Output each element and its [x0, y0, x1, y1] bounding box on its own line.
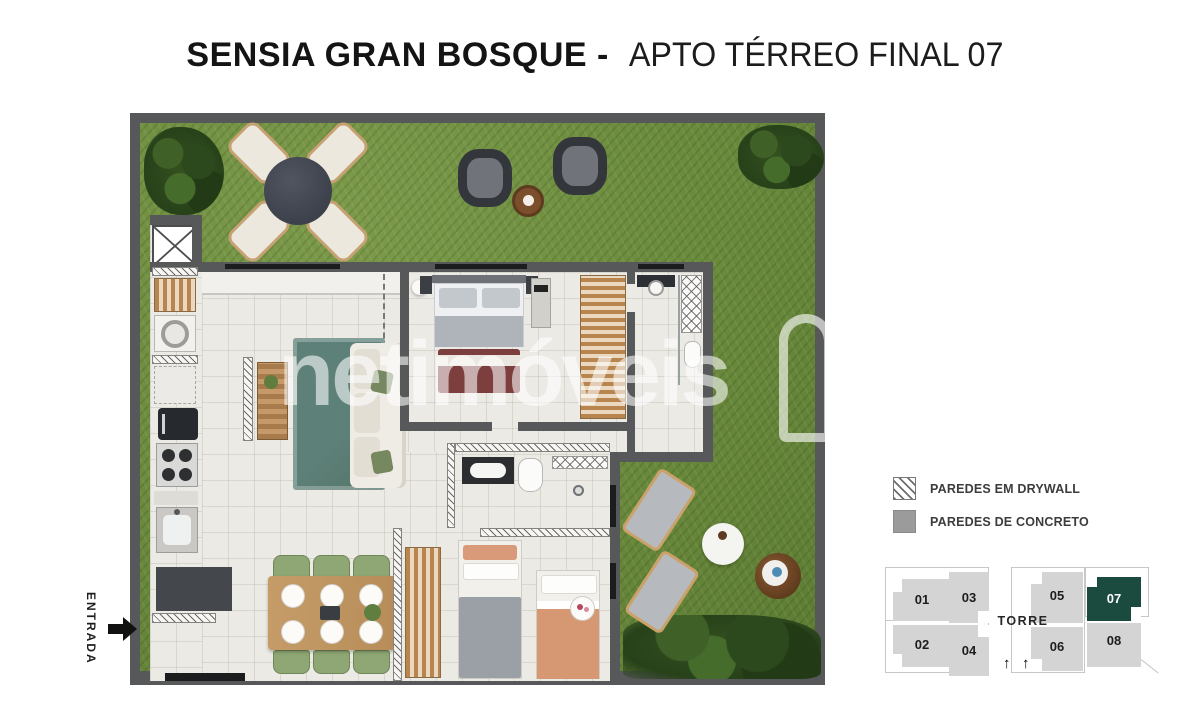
floorplan-page: SENSIA GRAN BOSQUE - APTO TÉRREO FINAL 0… — [0, 0, 1200, 720]
project-name: SENSIA GRAN BOSQUE - — [186, 36, 608, 74]
unit-06: 06 — [1031, 627, 1083, 671]
unit-notch — [1031, 572, 1042, 584]
garden-table — [264, 157, 332, 225]
flower — [577, 604, 583, 610]
shower-head — [573, 485, 584, 496]
burner — [179, 468, 192, 481]
sofa-pillow-green — [370, 369, 394, 395]
unit-04: 04 — [949, 625, 989, 676]
sofa-cushion — [354, 393, 380, 433]
unit-07-highlighted: 07 — [1087, 577, 1141, 621]
drywall-wall-bed2 — [480, 528, 610, 537]
plate — [281, 584, 305, 608]
sofa — [350, 343, 406, 488]
sideboard — [257, 362, 288, 440]
bed-headboard — [432, 275, 526, 283]
faucet — [174, 509, 180, 515]
nightstand — [420, 276, 432, 294]
apartment-name: APTO TÉRREO FINAL 07 — [629, 36, 1004, 75]
sink-basin — [163, 515, 191, 545]
blanket-salmon — [537, 609, 599, 679]
unit-03-label: 03 — [949, 590, 989, 605]
bush-top-right — [738, 125, 824, 189]
unit-notch — [1031, 659, 1042, 671]
page-title: SENSIA GRAN BOSQUE - APTO TÉRREO FINAL 0… — [0, 36, 1200, 75]
watermark-logo-tail — [835, 278, 876, 331]
watermark-logo-arch — [779, 314, 833, 442]
unit-06-label: 06 — [1031, 639, 1083, 654]
tv — [534, 285, 548, 292]
decor-plate — [570, 596, 595, 621]
unit-08-label: 08 — [1087, 633, 1141, 648]
pillow — [439, 288, 477, 308]
single-bed — [458, 540, 522, 679]
wall-suite-left — [400, 272, 409, 431]
unit-07-label: 07 — [1087, 591, 1141, 606]
dining-table — [268, 576, 396, 650]
unit-05-label: 05 — [1031, 588, 1083, 603]
drywall-wall — [152, 613, 216, 623]
window — [225, 264, 340, 269]
wall-suite-bottom — [408, 422, 492, 431]
unit-02-label: 02 — [893, 637, 951, 652]
egg-chair-pillow — [772, 567, 782, 577]
toilet — [684, 341, 701, 368]
unit-notch — [1087, 577, 1097, 587]
garden-pouf-cushion — [562, 146, 598, 186]
unit-notch — [893, 579, 902, 592]
wall-suite-bottom — [518, 422, 627, 431]
drywall-wall-bath2 — [455, 443, 610, 452]
plate — [359, 620, 383, 644]
tower-label: TORRE — [986, 614, 1060, 630]
unit-01-label: 01 — [893, 592, 951, 607]
unit-02: 02 — [893, 625, 951, 667]
plate — [281, 620, 305, 644]
counter-cabinet — [154, 366, 196, 404]
plate — [320, 584, 344, 608]
stove — [156, 443, 198, 487]
coffee-cup — [523, 195, 534, 206]
unit-01: 01 — [893, 579, 951, 621]
kitchen-dark-cabinet — [156, 567, 232, 611]
unit-notch — [1131, 607, 1141, 621]
counter — [154, 491, 198, 505]
shower-glass — [678, 275, 680, 385]
plate — [320, 620, 344, 644]
pillow — [463, 563, 519, 580]
flower — [584, 607, 589, 612]
drywall-wall — [152, 355, 198, 364]
window — [638, 264, 684, 269]
fridge-handle — [162, 414, 165, 434]
window — [610, 485, 616, 527]
concrete-swatch — [893, 510, 916, 533]
suite-wardrobe — [580, 275, 626, 419]
burner — [162, 449, 175, 462]
garden-pouf-cushion — [467, 158, 503, 198]
drywall-wall-bath2 — [447, 443, 455, 528]
window — [610, 563, 616, 599]
toilet — [518, 458, 543, 492]
single-bed — [536, 570, 600, 679]
unit-notch — [893, 654, 902, 667]
bench-throw — [438, 355, 520, 366]
window — [435, 264, 527, 269]
legend-item-drywall: PAREDES EM DRYWALL — [893, 477, 1153, 501]
plant-pot — [264, 375, 278, 389]
pillow-salmon — [463, 545, 517, 560]
dining-chair — [273, 650, 310, 674]
blanket-gray — [459, 597, 521, 678]
concrete-label: PAREDES DE CONCRETO — [930, 515, 1089, 529]
unit-03: 03 — [949, 572, 989, 623]
pillow — [482, 288, 520, 308]
dining-chair — [353, 650, 390, 674]
kitchen-cabinet — [154, 278, 196, 312]
table-plant — [364, 604, 381, 621]
north-arrow: ↑ — [1022, 655, 1030, 672]
drywall-label: PAREDES EM DRYWALL — [930, 482, 1080, 496]
north-arrow: ↑ — [1003, 655, 1011, 672]
bush-top-left — [144, 127, 224, 215]
unit-04-label: 04 — [949, 643, 989, 658]
wall-bath-left — [627, 312, 635, 462]
entrance-arrow — [108, 624, 123, 634]
washer-drum — [161, 320, 189, 348]
wall — [703, 272, 713, 462]
entrance-arrow-head — [123, 617, 137, 641]
kitchen-counter — [202, 272, 400, 295]
suite-shower — [681, 275, 702, 333]
table-tray — [320, 606, 340, 620]
sofa-pillow-green — [370, 449, 394, 474]
burner — [179, 449, 192, 462]
drywall-wall — [152, 267, 198, 276]
patio-cup — [718, 531, 727, 540]
double-bed — [434, 283, 524, 347]
drywall-swatch — [893, 477, 916, 500]
suite-sink — [648, 280, 664, 296]
bath2-shower-glass — [552, 456, 608, 469]
floor-plan — [130, 113, 825, 685]
legend-item-concrete: PAREDES DE CONCRETO — [893, 510, 1153, 534]
tower-key-plan: 01 02 03 04 05 06 07 08 TORRE — [883, 563, 1155, 683]
wall-bath-left — [627, 272, 635, 284]
drywall-wall — [243, 357, 253, 441]
bed2-wardrobe — [405, 547, 441, 678]
duvet — [435, 316, 523, 347]
burner — [162, 468, 175, 481]
entry-door — [165, 673, 245, 681]
pillow — [541, 575, 597, 594]
shaft-x-mark — [154, 227, 196, 265]
entrance-label: ENTRADA — [84, 592, 98, 665]
drywall-wall-bed2 — [393, 528, 402, 681]
patio-table — [702, 523, 744, 565]
unit-08: 08 — [1087, 623, 1141, 667]
dining-chair — [313, 650, 350, 674]
bath2-sink — [470, 463, 506, 478]
